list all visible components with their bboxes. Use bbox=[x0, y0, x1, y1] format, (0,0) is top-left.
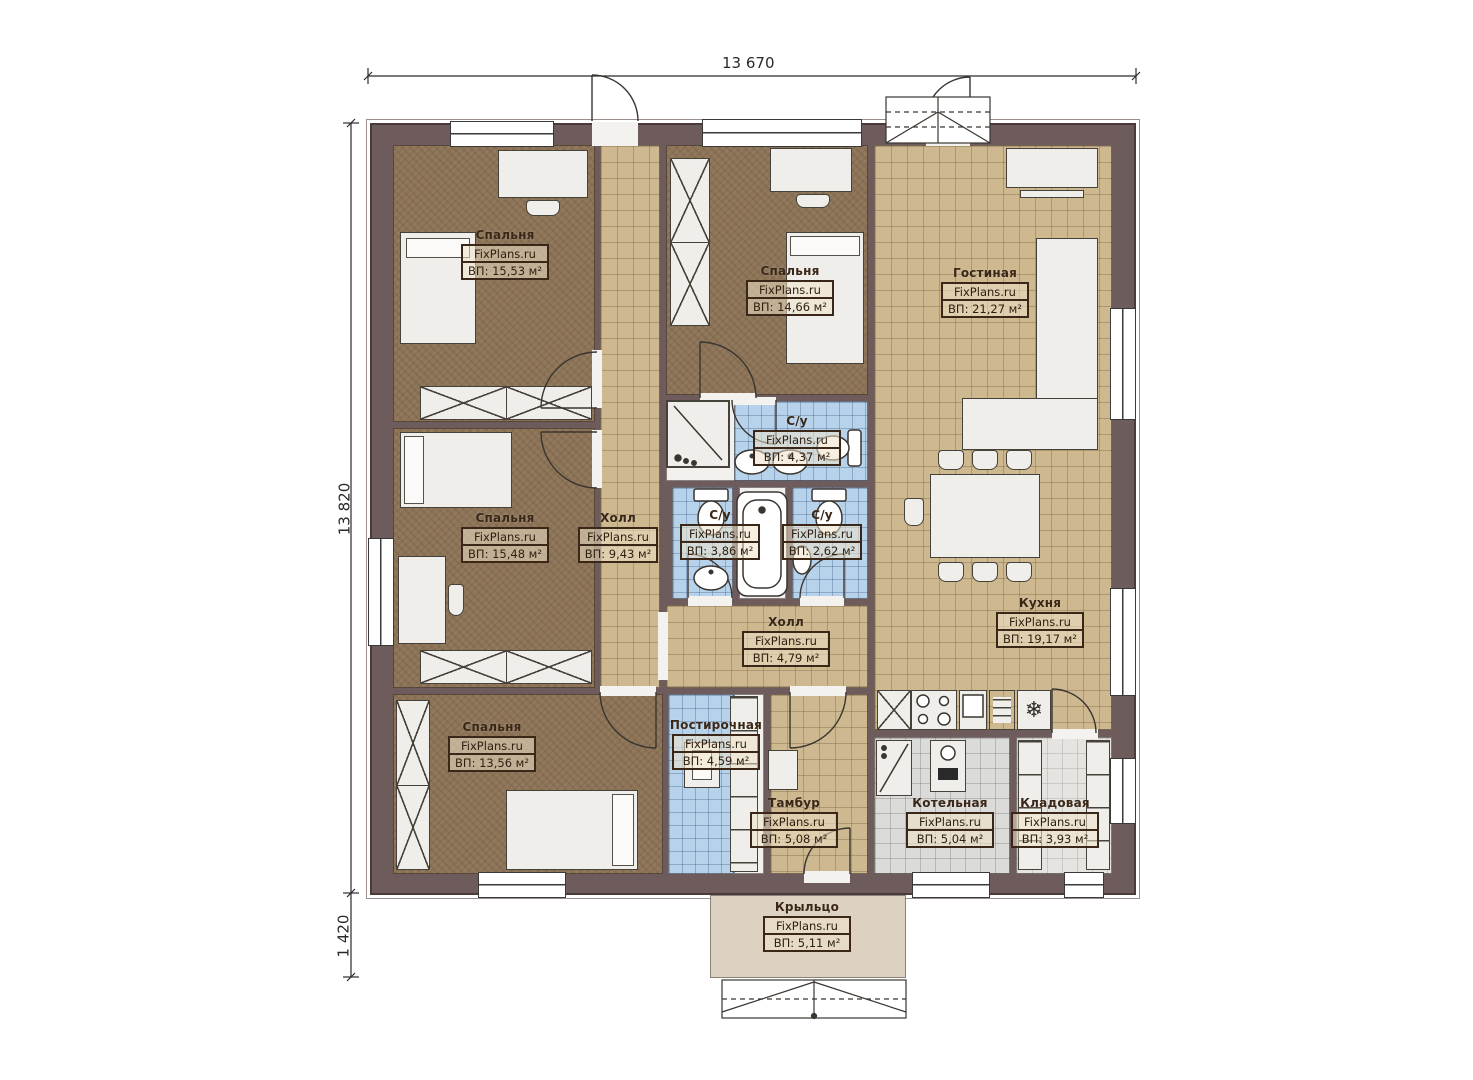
watermark-text: FixPlans.ru bbox=[943, 284, 1027, 301]
watermark-text: FixPlans.ru bbox=[908, 814, 992, 831]
watermark-text: FixPlans.ru bbox=[463, 246, 547, 263]
room-title: Холл bbox=[570, 511, 666, 525]
chair bbox=[796, 194, 830, 208]
fridge: ❄ bbox=[1017, 690, 1051, 730]
room-title: Котельная bbox=[890, 796, 1010, 810]
room-info-box: FixPlans.ru ВП: 5,08 м² bbox=[750, 812, 838, 848]
label-bedroom-1: Спальня FixPlans.ru ВП: 15,53 м² bbox=[445, 228, 565, 280]
room-info-box: FixPlans.ru ВП: 5,11 м² bbox=[763, 916, 851, 952]
door-opening bbox=[730, 397, 776, 405]
boiler-sink bbox=[876, 740, 912, 796]
room-area: ВП: 19,17 м² bbox=[998, 631, 1082, 646]
window bbox=[450, 121, 554, 147]
room-area: ВП: 5,08 м² bbox=[752, 831, 836, 846]
window bbox=[1110, 588, 1136, 696]
kitchen-sink-cabinet bbox=[959, 690, 987, 730]
label-bath-2: С/у FixPlans.ru ВП: 3,86 м² bbox=[672, 508, 768, 560]
watermark-text: FixPlans.ru bbox=[765, 918, 849, 935]
watermark-text: FixPlans.ru bbox=[755, 432, 839, 449]
room-title: Постирочная bbox=[656, 718, 776, 732]
room-info-box: FixPlans.ru ВП: 4,79 м² bbox=[742, 631, 830, 667]
chair bbox=[938, 450, 964, 470]
watermark-text: FixPlans.ru bbox=[450, 738, 534, 755]
room-title: Кладовая bbox=[995, 796, 1115, 810]
kitchen-corner-cabinet bbox=[877, 690, 911, 730]
room-info-box: FixPlans.ru ВП: 4,37 м² bbox=[753, 430, 841, 466]
room-area: ВП: 14,66 м² bbox=[748, 299, 832, 314]
window bbox=[1064, 872, 1104, 898]
snowflake-icon: ❄ bbox=[1025, 698, 1043, 723]
wardrobe bbox=[670, 158, 710, 326]
door-opening bbox=[600, 686, 656, 696]
chair bbox=[972, 562, 998, 582]
room-title: Спальня bbox=[432, 720, 552, 734]
chair bbox=[904, 498, 924, 526]
watermark-text: FixPlans.ru bbox=[998, 614, 1082, 631]
pillow bbox=[404, 436, 424, 504]
desk bbox=[398, 556, 446, 644]
room-area: ВП: 15,48 м² bbox=[463, 546, 547, 561]
room-area: ВП: 13,56 м² bbox=[450, 755, 534, 770]
dim-left: 13 820 bbox=[335, 483, 353, 536]
label-bedroom-3: Спальня FixPlans.ru ВП: 13,56 м² bbox=[432, 720, 552, 772]
label-hall-main: Холл FixPlans.ru ВП: 9,43 м² bbox=[570, 511, 666, 563]
label-bath-1: С/у FixPlans.ru ВП: 4,37 м² bbox=[737, 414, 857, 466]
room-info-box: FixPlans.ru ВП: 4,59 м² bbox=[672, 734, 760, 770]
label-tambour: Тамбур FixPlans.ru ВП: 5,08 м² bbox=[734, 796, 854, 848]
room-area: ВП: 21,27 м² bbox=[943, 301, 1027, 316]
door-opening bbox=[790, 686, 846, 696]
dining-table bbox=[930, 474, 1040, 558]
boiler-burner bbox=[938, 768, 958, 780]
boiler bbox=[930, 740, 966, 792]
wardrobe bbox=[420, 386, 592, 420]
watermark-text: FixPlans.ru bbox=[682, 526, 759, 543]
pillow bbox=[790, 236, 860, 256]
room-title: Спальня bbox=[445, 511, 565, 525]
room-area: ВП: 5,11 м² bbox=[765, 935, 849, 950]
chair bbox=[1006, 562, 1032, 582]
wardrobe bbox=[420, 650, 592, 684]
watermark-text: FixPlans.ru bbox=[580, 529, 657, 546]
room-area: ВП: 3,93 м² bbox=[1013, 831, 1097, 846]
room-info-box: FixPlans.ru ВП: 21,27 м² bbox=[941, 282, 1029, 318]
tv bbox=[1020, 190, 1084, 198]
room-info-box: FixPlans.ru ВП: 2,62 м² bbox=[782, 524, 863, 560]
window bbox=[478, 872, 566, 898]
passage-opening bbox=[658, 612, 668, 680]
label-kitchen: Кухня FixPlans.ru ВП: 19,17 м² bbox=[980, 596, 1100, 648]
chair bbox=[526, 200, 560, 216]
room-area: ВП: 4,59 м² bbox=[674, 753, 758, 768]
dim-top: 13 670 bbox=[722, 54, 775, 72]
label-laundry: Постирочная FixPlans.ru ВП: 4,59 м² bbox=[656, 718, 776, 770]
window bbox=[368, 538, 394, 646]
door-opening bbox=[592, 430, 602, 488]
chair bbox=[448, 584, 464, 616]
label-hall-2: Холл FixPlans.ru ВП: 4,79 м² bbox=[726, 615, 846, 667]
chair bbox=[938, 562, 964, 582]
desk bbox=[770, 148, 852, 192]
wardrobe bbox=[396, 700, 430, 870]
label-porch: Крыльцо FixPlans.ru ВП: 5,11 м² bbox=[747, 900, 867, 952]
chair bbox=[972, 450, 998, 470]
door-opening bbox=[1052, 729, 1098, 739]
room-area: ВП: 15,53 м² bbox=[463, 263, 547, 278]
room-title: Кухня bbox=[980, 596, 1100, 610]
label-boiler: Котельная FixPlans.ru ВП: 5,04 м² bbox=[890, 796, 1010, 848]
room-title: Тамбур bbox=[734, 796, 854, 810]
room-info-box: FixPlans.ru ВП: 15,53 м² bbox=[461, 244, 549, 280]
room-area: ВП: 9,43 м² bbox=[580, 546, 657, 561]
door-opening bbox=[926, 122, 970, 146]
room-title: С/у bbox=[774, 508, 870, 522]
room-area: ВП: 5,04 м² bbox=[908, 831, 992, 846]
dishwasher bbox=[989, 690, 1015, 730]
chair bbox=[1006, 450, 1032, 470]
watermark-text: FixPlans.ru bbox=[744, 633, 828, 650]
room-area: ВП: 4,79 м² bbox=[744, 650, 828, 665]
sofa bbox=[962, 398, 1098, 450]
room-area: ВП: 2,62 м² bbox=[784, 543, 861, 558]
door-opening bbox=[800, 596, 844, 606]
room-title: Спальня bbox=[730, 264, 850, 278]
room-info-box: FixPlans.ru ВП: 13,56 м² bbox=[448, 736, 536, 772]
label-storage: Кладовая FixPlans.ru ВП: 3,93 м² bbox=[995, 796, 1115, 848]
label-bath-3: С/у FixPlans.ru ВП: 2,62 м² bbox=[774, 508, 870, 560]
label-living: Гостиная FixPlans.ru ВП: 21,27 м² bbox=[925, 266, 1045, 318]
room-info-box: FixPlans.ru ВП: 14,66 м² bbox=[746, 280, 834, 316]
room-area: ВП: 4,37 м² bbox=[755, 449, 839, 464]
watermark-text: FixPlans.ru bbox=[463, 529, 547, 546]
dim-left-bottom: 1 420 bbox=[334, 915, 352, 958]
watermark-text: FixPlans.ru bbox=[748, 282, 832, 299]
tv-stand bbox=[1006, 148, 1098, 188]
room-title: Холл bbox=[726, 615, 846, 629]
room-info-box: FixPlans.ru ВП: 3,86 м² bbox=[680, 524, 761, 560]
room-area: ВП: 3,86 м² bbox=[682, 543, 759, 558]
room-info-box: FixPlans.ru ВП: 15,48 м² bbox=[461, 527, 549, 563]
window bbox=[912, 872, 990, 898]
window bbox=[1110, 308, 1136, 420]
door-opening bbox=[804, 871, 850, 883]
shower-cabin bbox=[666, 400, 730, 468]
porch-steps bbox=[722, 980, 906, 1019]
window bbox=[702, 119, 862, 147]
room-title: Крыльцо bbox=[747, 900, 867, 914]
door-opening bbox=[592, 350, 602, 408]
watermark-text: FixPlans.ru bbox=[1013, 814, 1097, 831]
room-info-box: FixPlans.ru ВП: 9,43 м² bbox=[578, 527, 659, 563]
room-title: Спальня bbox=[445, 228, 565, 242]
room-title: Гостиная bbox=[925, 266, 1045, 280]
pillow bbox=[612, 794, 634, 866]
door-opening bbox=[592, 122, 638, 146]
label-bedroom-2: Спальня FixPlans.ru ВП: 15,48 м² bbox=[445, 511, 565, 563]
floor-plan: ❄ bbox=[0, 0, 1473, 1080]
room-info-box: FixPlans.ru ВП: 3,93 м² bbox=[1011, 812, 1099, 848]
room-hall-main bbox=[600, 145, 660, 688]
watermark-text: FixPlans.ru bbox=[752, 814, 836, 831]
room-title: С/у bbox=[672, 508, 768, 522]
label-bedroom-4: Спальня FixPlans.ru ВП: 14,66 м² bbox=[730, 264, 850, 316]
watermark-text: FixPlans.ru bbox=[674, 736, 758, 753]
door-opening bbox=[688, 596, 732, 606]
desk bbox=[498, 150, 588, 198]
room-title: С/у bbox=[737, 414, 857, 428]
stove bbox=[911, 690, 957, 730]
watermark-text: FixPlans.ru bbox=[784, 526, 861, 543]
room-info-box: FixPlans.ru ВП: 5,04 м² bbox=[906, 812, 994, 848]
room-info-box: FixPlans.ru ВП: 19,17 м² bbox=[996, 612, 1084, 648]
